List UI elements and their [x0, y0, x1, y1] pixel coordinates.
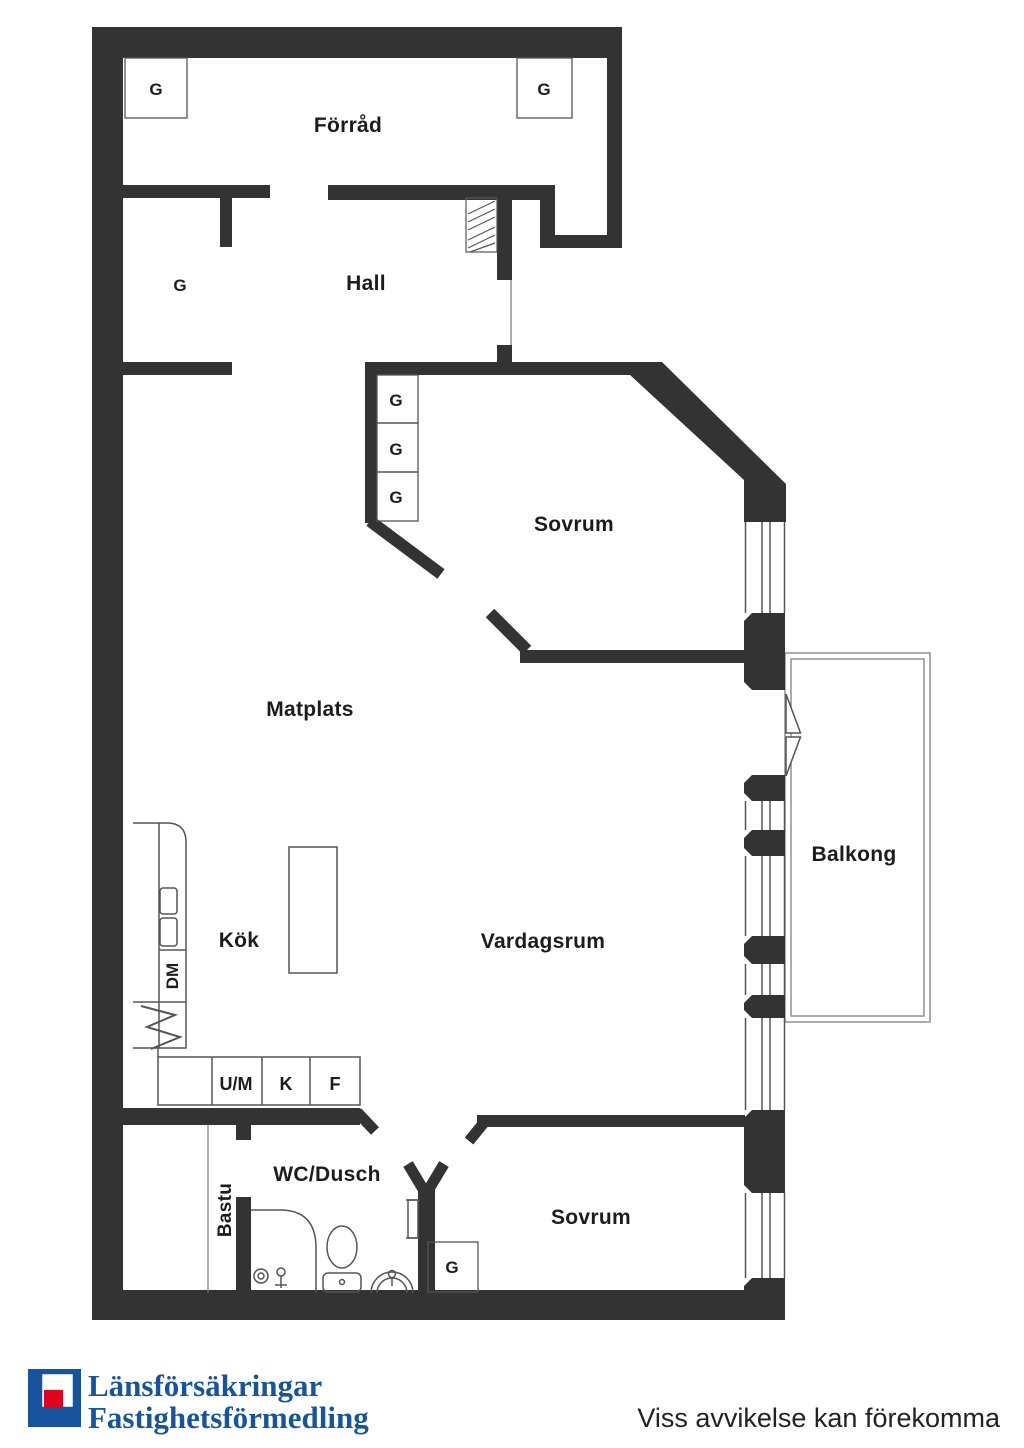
wall-tick-wc-door [357, 1112, 375, 1131]
room-label-sovrum-bottom: Sovrum [551, 1206, 631, 1229]
balcony-door-leaves [786, 694, 801, 776]
pier [744, 995, 785, 1018]
logo-text-line2: Fastighetsförmedling [88, 1400, 369, 1435]
wall-sauna [236, 1197, 251, 1293]
floor-drain [254, 1269, 268, 1283]
wall-left [92, 27, 123, 1320]
footer: Länsförsäkringar Fastighetsförmedling Vi… [28, 1368, 1001, 1435]
logo-text-line1: Länsförsäkringar [88, 1368, 322, 1403]
window [746, 801, 785, 830]
wall-sovrum-top [365, 362, 643, 375]
wall-entry-step-h [553, 235, 622, 248]
radiator [406, 1200, 420, 1238]
room-label-forrad: Förråd [314, 114, 382, 137]
pier [744, 830, 785, 856]
wall-hall-stub-upper [497, 200, 512, 280]
walls [92, 27, 786, 1320]
wall-big-diagonal [630, 362, 786, 522]
fridge-label: K [280, 1074, 293, 1094]
dishwasher-label: DM [163, 963, 182, 989]
floorplan-svg: Förråd Hall Sovrum Matplats Kök Vardagsr… [0, 0, 1024, 1448]
wall-hall-stub-lower [497, 345, 512, 362]
wall-vardagsrum-sovrum [477, 1115, 745, 1127]
wall-forrad-hall-right [328, 185, 555, 200]
pier [744, 936, 785, 964]
entry-hatch [466, 198, 497, 252]
freezer-label: F [330, 1074, 341, 1094]
wall-y-arm-right [426, 1164, 444, 1194]
closet-label: G [537, 80, 550, 99]
wall-tick-sovrum-door [469, 1119, 487, 1141]
room-label-matplats: Matplats [266, 698, 354, 721]
closet-label: G [389, 440, 402, 459]
floorplan-page: Förråd Hall Sovrum Matplats Kök Vardagsr… [0, 0, 1024, 1448]
window [746, 1193, 785, 1278]
wall-sovrum-door-diagonal [490, 613, 527, 650]
window [746, 1018, 785, 1110]
floor-drain [258, 1273, 264, 1279]
closet-label: G [173, 276, 186, 295]
kitchen-island [289, 847, 337, 973]
wall-sovrum-closet [365, 375, 377, 523]
toilet [323, 1226, 361, 1292]
closet-labels: G G G G G G G [149, 80, 550, 1277]
wall-sovrum-bottom [520, 650, 746, 663]
room-label-bastu: Bastu [215, 1183, 236, 1237]
room-label-hall: Hall [346, 272, 386, 295]
sink-basin [371, 1271, 413, 1294]
pier [744, 775, 785, 801]
wall-closet-stub [220, 198, 232, 247]
window [746, 964, 785, 995]
wall-bottom [92, 1290, 744, 1320]
room-label-kok: Kök [219, 929, 260, 952]
closet-label: G [389, 391, 402, 410]
wall-closet-diagonal [370, 521, 441, 574]
pier [744, 613, 785, 690]
room-label-wc-dusch: WC/Dusch [273, 1163, 380, 1186]
disclaimer-text: Viss avvikelse kan förekomma [637, 1403, 1001, 1433]
room-label-sovrum-top: Sovrum [534, 513, 614, 536]
kitchen-sink [160, 888, 177, 914]
oven-micro-label: U/M [220, 1074, 253, 1094]
room-labels: Förråd Hall Sovrum Matplats Kök Vardagsr… [215, 114, 896, 1237]
room-label-balkong: Balkong [812, 843, 897, 866]
facade-piers [744, 613, 785, 1320]
shower-mixer [275, 1268, 287, 1288]
window [746, 522, 785, 613]
closet-label: G [445, 1258, 458, 1277]
lf-logo-mark [28, 1369, 81, 1427]
closet-label: G [389, 488, 402, 507]
wall-top [92, 27, 622, 58]
wall-kitchen-wc [123, 1108, 360, 1125]
shower-enclosure [251, 1210, 316, 1293]
wall-forrad-hall-left [123, 185, 270, 198]
closet-label: G [149, 80, 162, 99]
pier-corner [744, 1278, 785, 1320]
pier [744, 1110, 785, 1193]
wall-forrad-right [607, 58, 622, 248]
appliance-labels: DM U/M K F [163, 963, 341, 1094]
wall-sauna-stub [236, 1125, 251, 1140]
room-label-vardagsrum: Vardagsrum [481, 930, 605, 953]
stove-symbol [141, 1006, 180, 1049]
kitchen-sink [160, 918, 177, 946]
window [746, 856, 785, 936]
wall-hall-closet-bottom [123, 362, 232, 375]
balcony-outline [785, 653, 930, 1022]
